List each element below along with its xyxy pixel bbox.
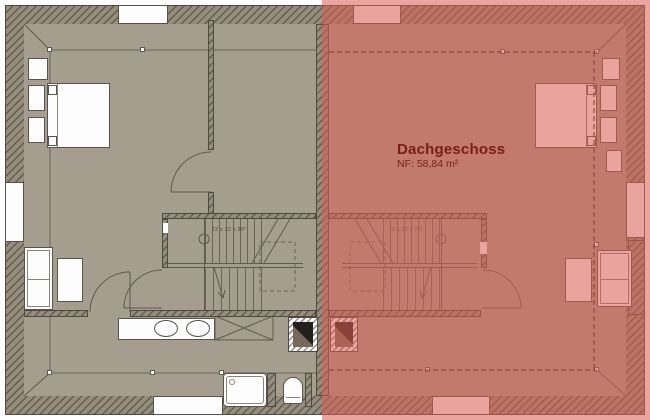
knee-wall-lines-right — [0, 0, 650, 420]
floor-area-label: NF: 58,84 m² — [397, 158, 505, 171]
floor-title-block: Dachgeschoss NF: 58,84 m² — [397, 141, 505, 171]
floor-title: Dachgeschoss — [397, 141, 505, 158]
floor-plan-canvas: 12 x 22 x 20° 12 x 22 x 20° Dachgeschoss… — [0, 0, 650, 420]
